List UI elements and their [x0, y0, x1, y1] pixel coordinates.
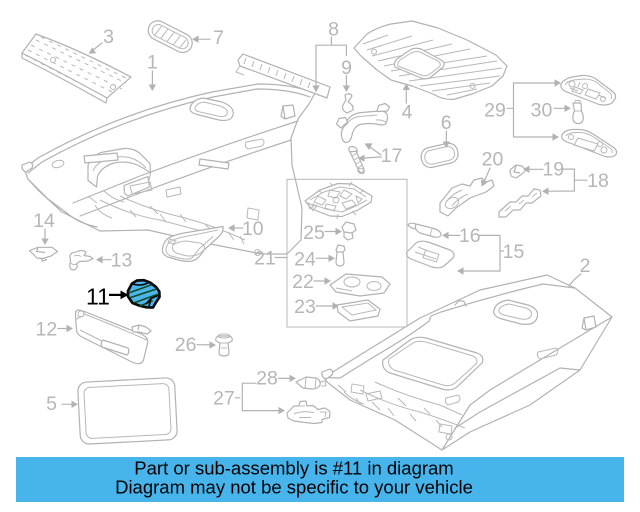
svg-text:Part or sub-assembly is #11 in: Part or sub-assembly is #11 in diagram — [134, 458, 453, 479]
svg-text:1: 1 — [147, 52, 158, 74]
svg-text:28: 28 — [256, 368, 278, 390]
svg-text:14: 14 — [33, 210, 55, 232]
svg-text:23: 23 — [294, 296, 316, 318]
svg-text:5: 5 — [46, 393, 57, 415]
svg-text:13: 13 — [111, 250, 133, 272]
svg-text:11: 11 — [86, 284, 110, 310]
svg-text:29: 29 — [484, 99, 506, 121]
svg-text:8: 8 — [328, 19, 339, 41]
svg-text:25: 25 — [303, 222, 325, 244]
svg-text:22: 22 — [292, 271, 314, 293]
svg-text:19: 19 — [542, 158, 564, 180]
svg-text:26: 26 — [175, 334, 197, 356]
svg-text:Diagram may not be specific to: Diagram may not be specific to your vehi… — [115, 477, 473, 498]
svg-text:20: 20 — [482, 149, 504, 171]
svg-text:15: 15 — [503, 241, 525, 263]
svg-text:30: 30 — [531, 99, 553, 121]
svg-text:12: 12 — [36, 319, 58, 341]
svg-text:3: 3 — [103, 26, 114, 48]
svg-text:27: 27 — [213, 388, 235, 410]
svg-text:16: 16 — [459, 225, 481, 247]
svg-text:17: 17 — [381, 145, 403, 167]
svg-text:10: 10 — [242, 218, 264, 240]
svg-text:18: 18 — [587, 170, 609, 192]
svg-text:24: 24 — [294, 249, 316, 271]
svg-text:7: 7 — [213, 27, 224, 49]
svg-text:4: 4 — [402, 102, 413, 124]
svg-text:21: 21 — [254, 248, 276, 270]
